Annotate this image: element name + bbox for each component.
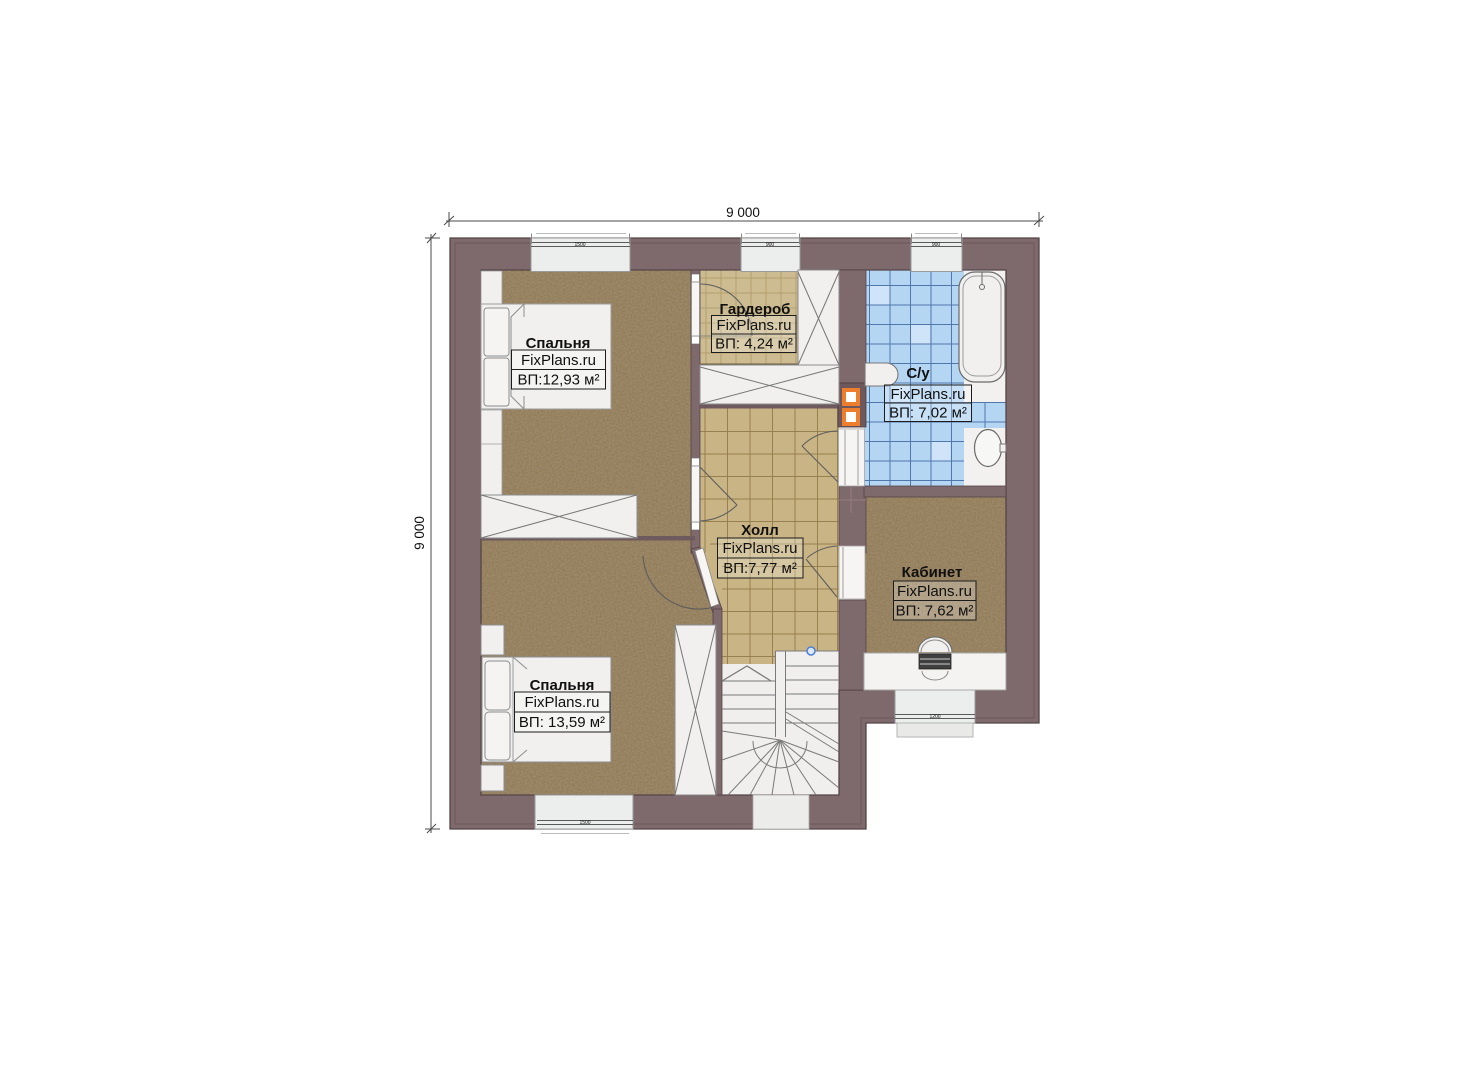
svg-text:900: 900 bbox=[932, 242, 941, 248]
svg-text:ВП: 13,59 м²: ВП: 13,59 м² bbox=[519, 714, 605, 731]
svg-text:С/у: С/у bbox=[906, 365, 930, 382]
svg-text:ВП: 4,24 м²: ВП: 4,24 м² bbox=[715, 336, 793, 353]
svg-text:Холл: Холл bbox=[741, 522, 779, 539]
svg-text:Кабинет: Кабинет bbox=[902, 564, 963, 581]
svg-text:FixPlans.ru: FixPlans.ru bbox=[716, 317, 791, 334]
svg-text:FixPlans.ru: FixPlans.ru bbox=[890, 386, 965, 403]
svg-text:1200: 1200 bbox=[929, 714, 940, 720]
svg-text:Спальня: Спальня bbox=[530, 677, 595, 694]
svg-text:FixPlans.ru: FixPlans.ru bbox=[524, 694, 599, 711]
svg-text:ВП: 7,02 м²: ВП: 7,02 м² bbox=[889, 405, 967, 422]
svg-text:ВП: 7,62 м²: ВП: 7,62 м² bbox=[896, 603, 974, 620]
svg-text:FixPlans.ru: FixPlans.ru bbox=[722, 540, 797, 557]
svg-text:Спальня: Спальня bbox=[526, 335, 591, 352]
svg-text:9 000: 9 000 bbox=[412, 516, 427, 550]
svg-text:FixPlans.ru: FixPlans.ru bbox=[521, 352, 596, 369]
svg-text:9 000: 9 000 bbox=[726, 205, 760, 220]
svg-text:900: 900 bbox=[766, 242, 775, 248]
svg-text:1500: 1500 bbox=[574, 242, 585, 248]
svg-text:FixPlans.ru: FixPlans.ru bbox=[897, 583, 972, 600]
svg-text:ВП:7,77 м²: ВП:7,77 м² bbox=[723, 560, 797, 577]
svg-text:1500: 1500 bbox=[579, 820, 590, 826]
svg-text:ВП:12,93 м²: ВП:12,93 м² bbox=[518, 372, 600, 389]
